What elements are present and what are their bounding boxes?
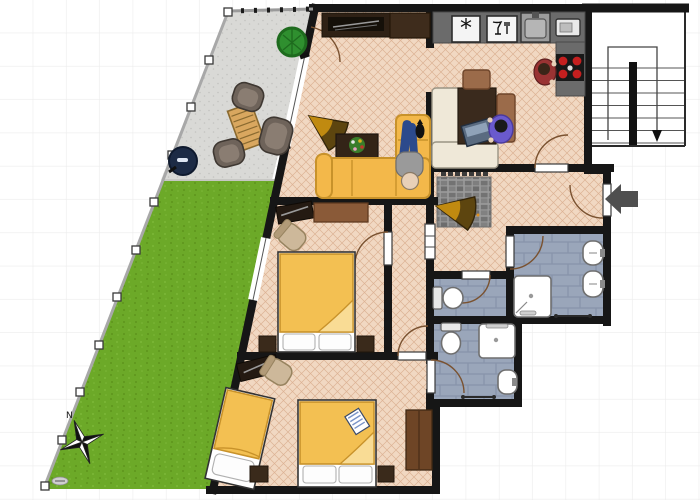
nightstand xyxy=(250,466,268,482)
nightstand xyxy=(357,336,374,352)
toilet-wc xyxy=(433,287,463,309)
dishwasher xyxy=(487,16,517,42)
dresser xyxy=(314,203,368,222)
toilet-ensuite xyxy=(441,323,461,354)
shower-main xyxy=(514,276,551,317)
shower-ensuite xyxy=(479,324,515,358)
corner-cabinet xyxy=(390,13,430,38)
stove xyxy=(556,54,584,81)
floor-plan-canvas: * xyxy=(0,0,700,500)
hall-corridor-opening xyxy=(425,224,435,259)
sink xyxy=(583,271,605,297)
nightstand xyxy=(378,466,394,482)
living-kitchen-opening xyxy=(425,48,435,92)
kettle-grill xyxy=(169,147,197,175)
microwave xyxy=(556,19,580,36)
north-label: N xyxy=(66,411,73,421)
coffee-table-with-flowers xyxy=(336,134,378,158)
sink-ensuite xyxy=(498,370,517,394)
fridge-icon: * xyxy=(460,14,472,42)
nightstand xyxy=(259,336,276,352)
person-cooking xyxy=(534,59,557,85)
person-at-table xyxy=(487,115,513,143)
watermark-logo xyxy=(52,477,68,485)
fridge: * xyxy=(452,14,480,42)
tv-sideboard xyxy=(322,13,390,37)
sink xyxy=(583,241,605,265)
double-bed-bedroom2 xyxy=(298,400,376,487)
double-bed-bedroom1 xyxy=(278,252,355,352)
bush xyxy=(278,28,306,56)
kitchen-sink xyxy=(521,12,550,42)
floor-plan-page: * xyxy=(0,0,700,500)
stair-stringer xyxy=(629,62,637,145)
wood-chair xyxy=(463,70,490,89)
wardrobe xyxy=(406,410,432,470)
